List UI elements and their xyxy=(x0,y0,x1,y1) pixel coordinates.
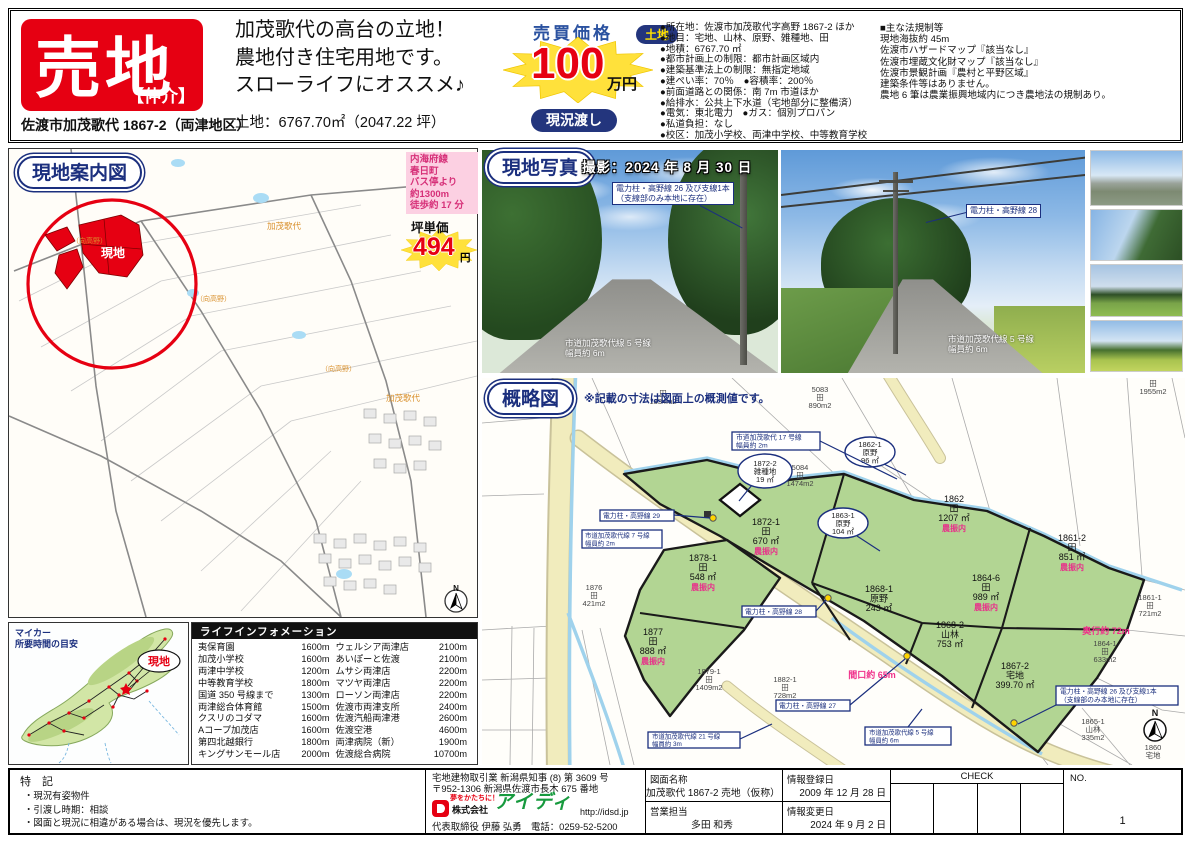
svg-text:農振内: 農振内 xyxy=(754,546,778,556)
svg-text:田: 田 xyxy=(698,563,707,573)
life-item: あいぽーと佐渡2100m xyxy=(336,654,474,666)
shot-date: 撮影：2024 年 8 月 30 日 xyxy=(582,156,752,176)
svg-text:670 ㎡: 670 ㎡ xyxy=(753,536,780,546)
svg-text:633m2: 633m2 xyxy=(1094,655,1117,664)
drawing-info: 図面名称 加茂歌代 1867-2 売地（仮称） 営業担当 多田 和秀 xyxy=(645,770,782,833)
svg-text:399.70 ㎡: 399.70 ㎡ xyxy=(995,680,1034,690)
svg-text:加茂歌代: 加茂歌代 xyxy=(386,393,421,403)
svg-text:幅員約 6m: 幅員約 6m xyxy=(869,736,899,745)
svg-text:721m2: 721m2 xyxy=(1139,609,1162,618)
svg-text:1955m2: 1955m2 xyxy=(1139,387,1166,396)
svg-text:間口約 65m: 間口約 65m xyxy=(848,669,896,680)
company-url: http://idsd.jp xyxy=(580,807,629,818)
svg-text:（向高野）: （向高野） xyxy=(321,364,356,373)
life-item: マツヤ両津店2200m xyxy=(336,678,474,690)
svg-text:1867-2: 1867-2 xyxy=(1001,661,1029,671)
phone-number: 電話：0259-52-5200 xyxy=(531,821,618,832)
flyer-page: 売地 【仲介】 佐渡市加茂歌代 1867-2（両津地区） 加茂歌代の高台の立地！… xyxy=(0,0,1191,842)
life-item: 両津病院（新）1900m xyxy=(336,737,474,749)
photo1-annotation: 電力柱・高野線 26 及び支線1本 （支線部のみ本地に存在） xyxy=(612,182,734,205)
check-cell xyxy=(891,784,933,833)
parcel-sketch-map: 1872-1田670 ㎡ 農振内 1862田1207 ㎡ 農振内 1861-2田… xyxy=(482,378,1185,765)
price-unit: 万円 xyxy=(607,73,637,94)
sales-label: 営業担当 xyxy=(650,806,688,817)
svg-text:753 ㎡: 753 ㎡ xyxy=(937,639,964,649)
catch-copy: 加茂歌代の高台の立地！ 農地付き住宅用地です。 スローライフにオススメ♪ xyxy=(235,17,465,100)
svg-text:電力柱・高野線 28: 電力柱・高野線 28 xyxy=(745,607,802,616)
svg-text:市道加茂歌代線 5 号線: 市道加茂歌代線 5 号線 xyxy=(869,728,934,737)
svg-text:幅員約 2m: 幅員約 2m xyxy=(585,539,615,548)
life-item: ローソン両津店2200m xyxy=(336,690,474,702)
land-details-list: ●所在地：佐渡市加茂歌代字高野 1867-2 ほか ●地目：宅地、山林、原野、雑… xyxy=(660,23,867,142)
svg-text:田: 田 xyxy=(981,583,990,593)
svg-text:N: N xyxy=(453,584,459,593)
svg-text:市道加茂歌代線 21 号線: 市道加茂歌代線 21 号線 xyxy=(652,732,721,741)
svg-text:1862: 1862 xyxy=(944,494,964,504)
tsubo-price-unit: 円 xyxy=(460,250,471,265)
svg-text:104 ㎡: 104 ㎡ xyxy=(832,527,855,536)
price-value: 100 xyxy=(531,39,604,89)
thumb-photo-1 xyxy=(1090,150,1183,206)
sketch-note: ※記載の寸法は図面上の概測値です。 xyxy=(584,390,770,406)
svg-text:1878-1: 1878-1 xyxy=(689,553,717,563)
site-parcels-red xyxy=(45,215,143,289)
svg-text:田: 田 xyxy=(949,504,958,514)
svg-text:幅員約 3m: 幅員約 3m xyxy=(652,739,682,748)
svg-text:（向高野）: （向高野） xyxy=(196,294,231,303)
svg-text:851 ㎡: 851 ㎡ xyxy=(1059,552,1086,562)
svg-text:電力柱・高野線 26 及び支線1本: 電力柱・高野線 26 及び支線1本 xyxy=(1060,687,1157,696)
utility-pole xyxy=(740,160,747,365)
life-item: 両津中学校1200m xyxy=(198,666,336,678)
svg-text:加茂歌代: 加茂歌代 xyxy=(267,221,302,231)
svg-text:335m2: 335m2 xyxy=(1082,733,1105,742)
photo2-road-note: 市道加茂歌代線 5 号線 幅員約 6m xyxy=(948,334,1034,354)
company-logo-icon xyxy=(432,800,449,817)
registered-label: 情報登録日 xyxy=(787,774,834,785)
check-cell xyxy=(1020,784,1063,833)
svg-text:原野: 原野 xyxy=(870,594,888,604)
registered-date: 2009 年 12 月 28 日 xyxy=(783,785,886,799)
svg-text:電力柱・高野線 29: 電力柱・高野線 29 xyxy=(603,511,660,520)
svg-text:19 ㎡: 19 ㎡ xyxy=(756,475,774,484)
check-label: CHECK xyxy=(891,770,1063,784)
company-tagline: 夢をかたちに！ xyxy=(450,793,499,804)
life-item: 佐渡空港4600m xyxy=(336,725,474,737)
tsubo-price-value: 494 xyxy=(413,233,455,262)
guide-map-title: 現地案内図 xyxy=(17,156,142,189)
no-label: NO. xyxy=(1070,772,1087,783)
svg-text:1868-1: 1868-1 xyxy=(865,584,893,594)
company-prefix: 株式会社 xyxy=(452,805,488,816)
life-info-section: ライフインフォメーション 夷保育園1600m 加茂小学校1600m 両津中学校1… xyxy=(191,622,478,765)
life-info-col-left: 夷保育園1600m 加茂小学校1600m 両津中学校1200m 中等教育学校18… xyxy=(198,642,336,761)
svg-text:農振内: 農振内 xyxy=(974,602,998,612)
svg-text:奥行約 72m: 奥行約 72m xyxy=(1081,625,1130,636)
utility-pole xyxy=(893,172,898,354)
town-blocks xyxy=(314,409,441,594)
svg-text:1474m2: 1474m2 xyxy=(786,479,813,488)
representative: 代表取締役 伊藤 弘勇 xyxy=(432,821,522,832)
svg-text:農振内: 農振内 xyxy=(691,582,715,592)
life-item: ムサシ両津店2200m xyxy=(336,666,474,678)
property-address: 佐渡市加茂歌代 1867-2（両津地区） xyxy=(21,115,250,135)
svg-text:（向高野）: （向高野） xyxy=(72,236,107,245)
bus-access-note: 内海府線 春日町 バス停より 約1300m 徒歩約 17 分 xyxy=(406,152,478,214)
svg-text:1864-6: 1864-6 xyxy=(972,573,1000,583)
company-info: 宅地建物取引業 新潟県知事 (8) 第 3609 号 〒952-1306 新潟県… xyxy=(425,770,645,833)
car-site-label: 現地 xyxy=(148,654,170,668)
thumb-photo-3 xyxy=(1090,264,1183,317)
sheet-number: NO. 1 xyxy=(1063,770,1181,833)
life-item: ウェルシア両津店2100m xyxy=(336,642,474,654)
svg-text:（支線部のみ本地に存在）: （支線部のみ本地に存在） xyxy=(1060,695,1142,704)
svg-text:田: 田 xyxy=(1067,543,1076,553)
header-section: 売地 【仲介】 佐渡市加茂歌代 1867-2（両津地区） 加茂歌代の高台の立地！… xyxy=(8,8,1183,143)
main-roads xyxy=(9,149,477,617)
life-item: 第四北越銀行1800m xyxy=(198,737,336,749)
company-logo-row: 夢をかたちに！ 株式会社 アイディ http://idsd.jp xyxy=(432,795,639,821)
regulations-title: ■主な法規制等 xyxy=(880,23,1111,34)
svg-text:548 ㎡: 548 ㎡ xyxy=(690,572,717,582)
svg-text:728m2: 728m2 xyxy=(774,691,797,700)
drawing-name: 加茂歌代 1867-2 売地（仮称） xyxy=(646,785,778,799)
svg-text:243 ㎡: 243 ㎡ xyxy=(866,603,893,613)
svg-text:1409m2: 1409m2 xyxy=(695,683,722,692)
land-area: 土地：6767.70㎡（2047.22 坪） xyxy=(235,111,445,132)
car-map-title: マイカー 所要時間の目安 xyxy=(15,628,78,650)
sales-person: 多田 和秀 xyxy=(646,817,778,831)
svg-text:農振内: 農振内 xyxy=(641,656,665,666)
svg-text:農振内: 農振内 xyxy=(942,523,966,533)
company-name: アイディ xyxy=(494,797,572,808)
svg-text:96 ㎡: 96 ㎡ xyxy=(861,456,879,465)
svg-text:農振内: 農振内 xyxy=(1060,562,1084,572)
svg-text:幅員約 2m: 幅員約 2m xyxy=(736,441,768,450)
svg-text:1877: 1877 xyxy=(643,627,663,637)
site-photo-2 xyxy=(781,150,1085,373)
svg-text:888 ㎡: 888 ㎡ xyxy=(640,646,667,656)
guide-map-section: 現地 （向高野） 加茂歌代 （向高野） （向高野） 加茂歌代 N 現地案内図 内… xyxy=(8,148,478,618)
svg-text:421m2: 421m2 xyxy=(583,599,606,608)
svg-text:山林: 山林 xyxy=(941,629,959,640)
thumb-photo-2 xyxy=(1090,209,1183,261)
sketch-title: 概略図 xyxy=(487,382,574,415)
svg-text:田: 田 xyxy=(761,527,770,537)
svg-text:989 ㎡: 989 ㎡ xyxy=(973,592,1000,602)
crossarm xyxy=(879,180,913,183)
check-cell xyxy=(977,784,1020,833)
footer-section: 特 記 ・現況有姿物件 ・引渡し時期：相談 ・図面と現況に相違がある場合は、現況… xyxy=(8,768,1183,835)
svg-text:田: 田 xyxy=(648,637,657,647)
life-info-col-right: ウェルシア両津店2100m あいぽーと佐渡2100m ムサシ両津店2200m マ… xyxy=(336,642,474,761)
photo1-road-note: 市道加茂歌代線 5 号線 幅員約 6m xyxy=(565,338,651,358)
no-value: 1 xyxy=(1064,815,1181,827)
svg-text:市道加茂歌代線 7 号線: 市道加茂歌代線 7 号線 xyxy=(585,531,650,540)
sale-badge: 売地 【仲介】 xyxy=(21,19,203,111)
brokerage-label: 【仲介】 xyxy=(127,82,195,107)
life-item: 中等教育学校1800m xyxy=(198,678,336,690)
site-label: 現地 xyxy=(101,245,125,260)
modified-date: 2024 年 9 月 2 日 xyxy=(783,817,886,831)
thumb-photo-4 xyxy=(1090,320,1183,372)
registry-dates: 情報登録日 2009 年 12 月 28 日 情報変更日 2024 年 9 月 … xyxy=(782,770,890,833)
life-item: 夷保育園1600m xyxy=(198,642,336,654)
photo2-annotation: 電力柱・高野線 28 xyxy=(966,204,1041,218)
svg-text:市道加茂歌代 17 号線: 市道加茂歌代 17 号線 xyxy=(736,433,802,442)
life-item: 佐渡市両津支所2400m xyxy=(336,702,474,714)
svg-text:電力柱・高野線 27: 電力柱・高野線 27 xyxy=(779,701,836,710)
svg-text:宅地: 宅地 xyxy=(1006,670,1024,681)
modified-label: 情報変更日 xyxy=(787,806,834,817)
svg-text:890m2: 890m2 xyxy=(809,401,832,410)
life-info-title: ライフインフォメーション xyxy=(192,623,477,639)
special-notes: 特 記 ・現況有姿物件 ・引渡し時期：相談 ・図面と現況に相違がある場合は、現況… xyxy=(10,770,425,833)
svg-text:宅地: 宅地 xyxy=(1146,750,1162,760)
life-item: クスリのコダマ1600m xyxy=(198,713,336,725)
guide-map: 現地 （向高野） 加茂歌代 （向高野） （向高野） 加茂歌代 N xyxy=(9,149,477,617)
life-item: 佐渡総合病院10700m xyxy=(336,749,474,761)
photos-title: 現地写真 xyxy=(487,151,593,184)
check-box: CHECK xyxy=(890,770,1063,833)
crossarm xyxy=(883,190,909,192)
notes-title: 特 記 xyxy=(20,773,415,789)
svg-text:1861-2: 1861-2 xyxy=(1058,533,1086,543)
delivery-badge: 現況渡し xyxy=(531,109,617,132)
svg-text:1872-1: 1872-1 xyxy=(752,517,780,527)
svg-text:1868-2: 1868-2 xyxy=(936,620,964,630)
car-map-section: 現地 マイカー 所要時間の目安 xyxy=(8,622,189,765)
life-item: キングサンモール店2000m xyxy=(198,749,336,761)
svg-text:1207 ㎡: 1207 ㎡ xyxy=(938,513,970,523)
drawing-name-label: 図面名称 xyxy=(650,774,688,785)
life-item: 両津総合体育館1500m xyxy=(198,702,336,714)
guide-compass: N xyxy=(445,584,467,612)
life-item: 佐渡汽船両津港2600m xyxy=(336,713,474,725)
life-item: 国道 350 号線まで1300m xyxy=(198,690,336,702)
license-number: 宅地建物取引業 新潟県知事 (8) 第 3609 号 xyxy=(432,772,639,783)
svg-text:N: N xyxy=(1152,708,1159,718)
life-item: Aコープ加茂店1600m xyxy=(198,725,336,737)
check-cell xyxy=(933,784,976,833)
regulations-list: ■主な法規制等 現地海抜約 45m 佐渡市ハザードマップ『該当なし』 佐渡市埋蔵… xyxy=(880,23,1111,101)
life-item: 加茂小学校1600m xyxy=(198,654,336,666)
